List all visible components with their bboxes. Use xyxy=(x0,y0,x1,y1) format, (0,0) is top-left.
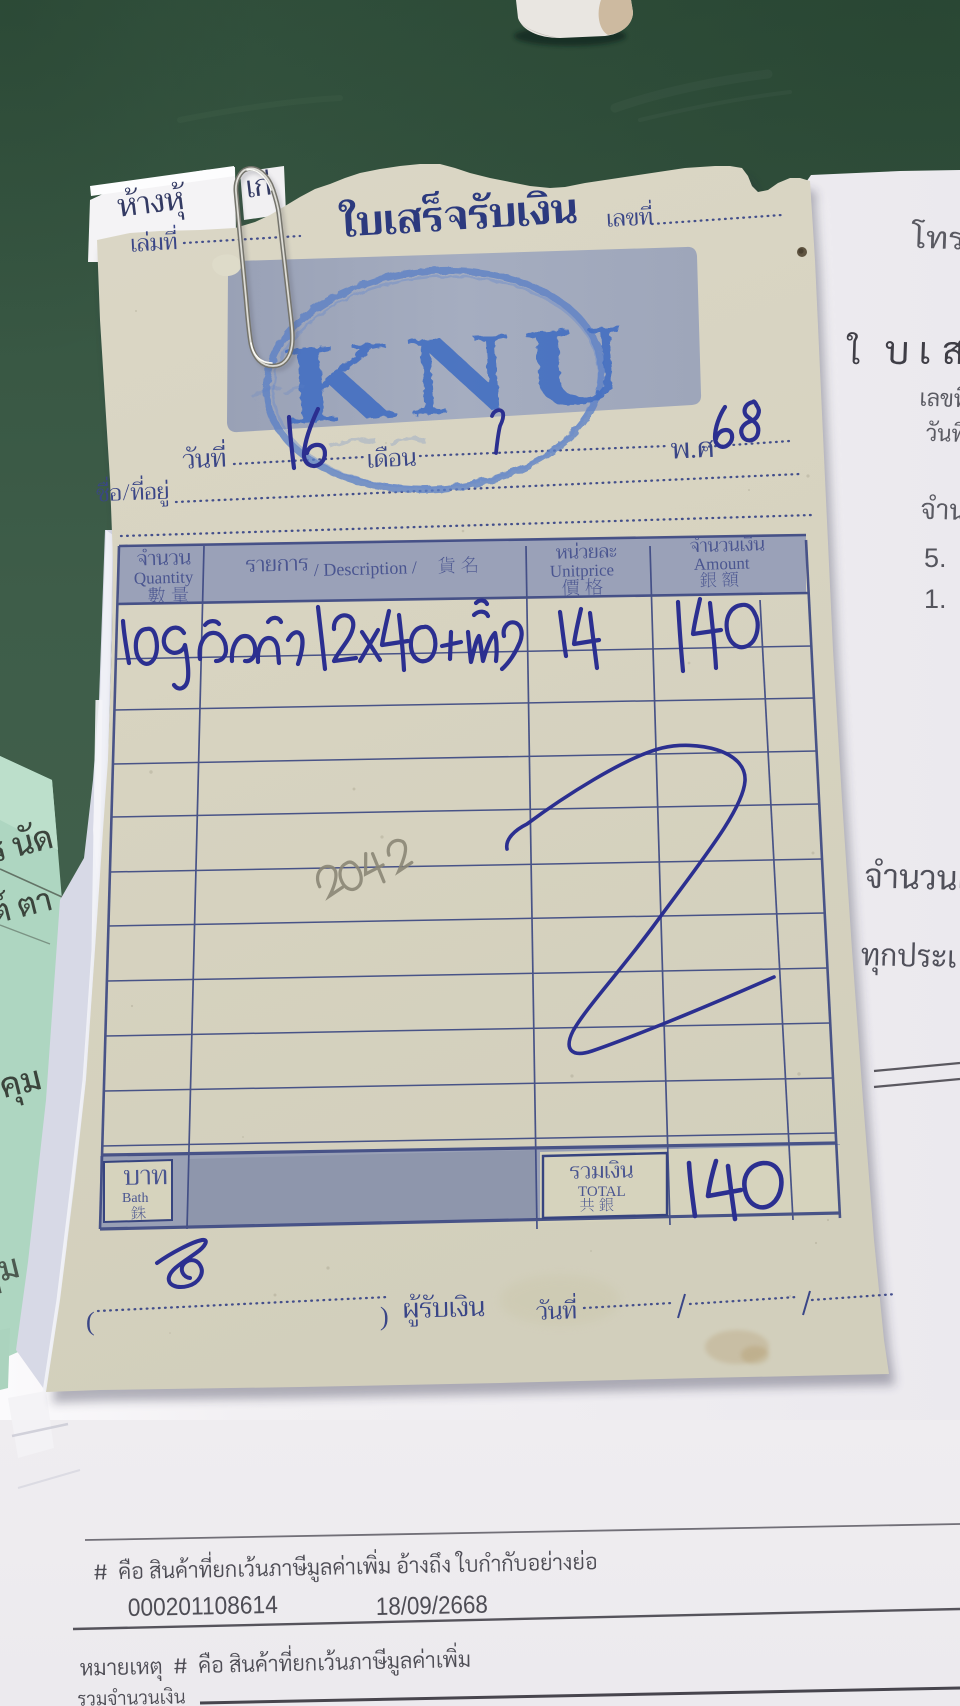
svg-text:/ Description /: / Description / xyxy=(314,557,417,580)
svg-text:(: ( xyxy=(86,1307,95,1336)
svg-text:Quantity: Quantity xyxy=(134,567,194,588)
svg-text:Bath: Bath xyxy=(122,1191,148,1206)
svg-text:1.: 1. xyxy=(924,584,947,614)
svg-text:000201108614: 000201108614 xyxy=(128,1591,279,1622)
svg-text:18/09/2668: 18/09/2668 xyxy=(376,1591,489,1621)
svg-text:Amount: Amount xyxy=(694,554,750,574)
svg-text:): ) xyxy=(380,1302,389,1331)
svg-text:Unitprice: Unitprice xyxy=(550,560,615,581)
svg-text:TOTAL: TOTAL xyxy=(578,1184,626,1200)
svg-text:5.: 5. xyxy=(924,543,947,573)
svg-text:KNU: KNU xyxy=(281,298,644,449)
